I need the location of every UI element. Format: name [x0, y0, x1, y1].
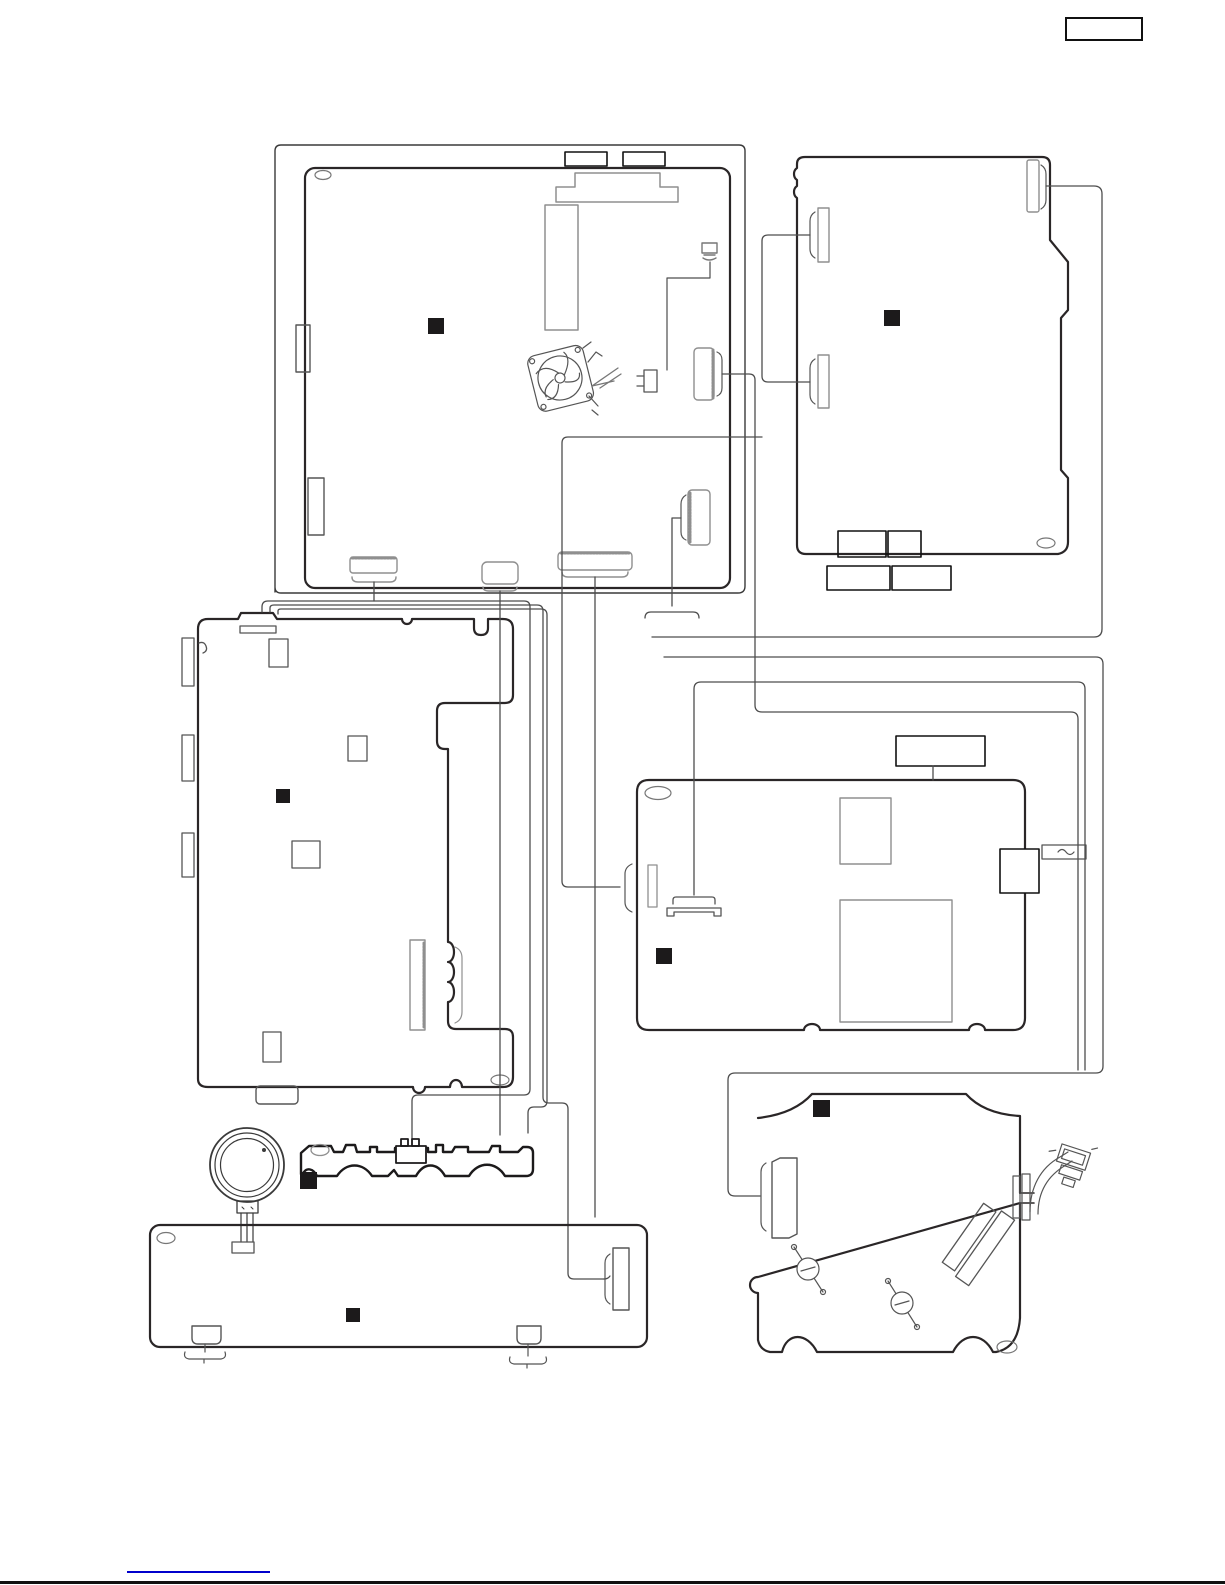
screw-icon	[792, 1245, 826, 1295]
connector	[613, 1248, 629, 1310]
power-board	[182, 613, 513, 1104]
connector	[810, 208, 829, 262]
component	[1000, 849, 1039, 893]
arrow-icon	[592, 368, 621, 388]
mount-hole	[645, 787, 671, 800]
connector	[565, 152, 607, 166]
connector	[296, 325, 310, 372]
marker-square	[346, 1308, 360, 1322]
shield-plate	[556, 173, 678, 202]
ribbon-connector	[410, 940, 425, 1030]
connector	[185, 1326, 226, 1363]
callout-box	[827, 566, 890, 590]
pickup-arm-icon	[1013, 1134, 1097, 1220]
reference-markers	[276, 310, 900, 1322]
connector	[182, 735, 194, 781]
connector	[648, 865, 657, 907]
connector	[182, 833, 194, 877]
connector	[1027, 160, 1046, 212]
component	[545, 205, 578, 330]
connector	[269, 639, 288, 667]
connector	[623, 152, 665, 166]
diagram-page	[0, 0, 1225, 1585]
connector	[350, 557, 397, 582]
bracket-component	[940, 1200, 1015, 1286]
marker-square	[300, 1172, 317, 1189]
connector	[558, 552, 632, 577]
connector	[810, 355, 829, 408]
connector	[667, 243, 717, 370]
connector	[761, 1158, 797, 1238]
mount-hole	[315, 171, 331, 180]
connector	[240, 626, 276, 633]
screw-icon	[886, 1279, 920, 1330]
callout-box	[896, 736, 985, 766]
component	[263, 1032, 281, 1062]
fan-icon	[526, 342, 602, 415]
socket-connector	[667, 897, 721, 916]
wiring-diagram	[0, 0, 1225, 1585]
wires	[262, 186, 1103, 1279]
component	[840, 900, 952, 1022]
marker-square	[884, 310, 900, 326]
callout-box	[892, 566, 951, 590]
ac-inlet	[1042, 845, 1086, 859]
mount-hole	[1037, 538, 1055, 548]
chassis-outline	[275, 145, 745, 593]
component	[637, 370, 657, 392]
ribbon-connector	[681, 490, 710, 545]
sensor-board	[750, 1094, 1034, 1353]
ground-symbol	[645, 612, 699, 618]
connector	[308, 478, 324, 535]
main-board	[296, 152, 730, 591]
connector	[482, 562, 518, 591]
front-board	[150, 1225, 647, 1368]
connector	[232, 1242, 254, 1253]
footer-rule	[0, 1581, 1225, 1584]
operation-panel-board	[301, 1139, 533, 1176]
marker-square	[813, 1100, 830, 1117]
component	[348, 736, 367, 761]
connector	[182, 638, 194, 686]
component	[840, 798, 891, 864]
ribbon-connector	[694, 348, 722, 400]
marker-square	[276, 789, 290, 803]
ground-symbol	[510, 1357, 547, 1368]
digital-board	[794, 157, 1068, 590]
footer-link[interactable]	[127, 1571, 270, 1573]
ground-symbol	[185, 1352, 226, 1363]
mount-hole	[157, 1233, 175, 1244]
marker-square	[656, 948, 672, 964]
connector	[256, 1086, 298, 1104]
component	[292, 841, 320, 868]
connector	[396, 1139, 426, 1163]
marker-square	[428, 318, 444, 334]
